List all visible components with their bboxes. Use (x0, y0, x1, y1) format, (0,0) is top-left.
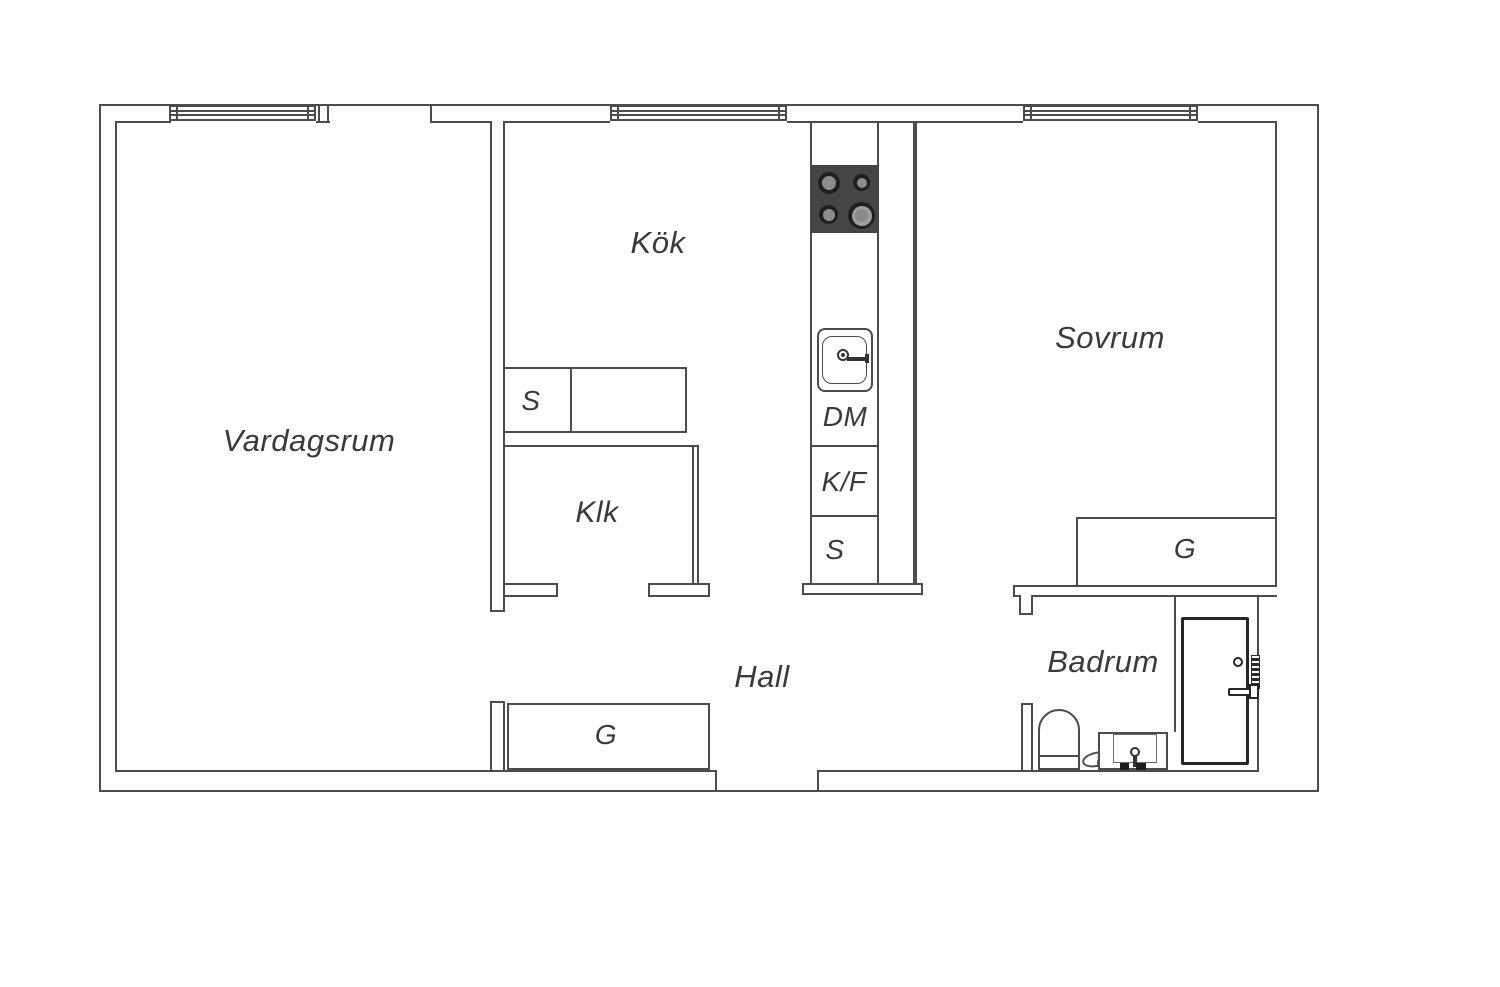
wall-segment (115, 121, 171, 123)
klk-door-jamb (708, 583, 710, 597)
wall-segment (1317, 104, 1319, 792)
fixture-label-hall-g: G (595, 719, 617, 751)
stove-burner (853, 174, 870, 191)
counter-strip-divider (810, 445, 879, 447)
door-knob (1233, 657, 1243, 667)
fixture-label-kf: K/F (821, 466, 866, 498)
stove-burner (818, 172, 840, 194)
door-jamb (1019, 595, 1021, 615)
wall-cap (921, 583, 923, 595)
counter-strip-divider (810, 515, 879, 517)
vanity-control (1136, 763, 1146, 770)
wall-segment (490, 701, 492, 772)
room-label-kok: Kök (631, 225, 686, 261)
window-end-cap (307, 107, 309, 119)
window-pane-line (1025, 110, 1196, 112)
window-end-cap (1030, 107, 1032, 119)
stove-burner (848, 202, 875, 229)
counter-divider (570, 367, 572, 433)
wall-segment (913, 122, 917, 583)
window-vardagsrum (169, 105, 316, 121)
counter-outline (505, 431, 687, 433)
wall-segment (915, 121, 1023, 123)
window-sovrum (1023, 105, 1198, 121)
klk-wall (505, 445, 699, 447)
toilet (1038, 709, 1080, 770)
wall-segment (316, 121, 330, 123)
wall-segment (490, 610, 505, 612)
wardrobe-outline (1076, 517, 1078, 587)
faucet-dot (841, 353, 845, 357)
klk-wall (697, 445, 699, 585)
faucet-arm (865, 354, 869, 363)
wall-segment (503, 121, 610, 123)
window-end-cap (778, 107, 780, 119)
fixture-label-tall-s: S (825, 534, 844, 566)
wall-segment (430, 121, 492, 123)
wall-segment (787, 121, 915, 123)
wall-segment (327, 106, 329, 121)
wall-segment (115, 770, 717, 772)
klk-wall (692, 445, 694, 585)
wall-segment (1033, 595, 1277, 597)
fixture-label-counter-s: S (521, 385, 540, 417)
vanity-faucet (1130, 747, 1140, 757)
wall-segment (1021, 703, 1023, 770)
klk-door-jamb (505, 583, 558, 585)
klk-door-jamb (648, 583, 710, 585)
vanity-control (1120, 763, 1129, 770)
wardrobe-outline (507, 703, 710, 705)
fixture-label-sovrum-g: G (1174, 533, 1196, 565)
wall-segment (99, 790, 1319, 792)
room-label-sovrum: Sovrum (1055, 320, 1165, 356)
window-end-cap (1189, 107, 1191, 119)
wall-segment (503, 701, 505, 772)
wall-cap (802, 583, 804, 595)
wall-segment (490, 121, 492, 612)
room-label-hall: Hall (734, 659, 789, 695)
door-jamb (1031, 595, 1033, 615)
window-pane-line (612, 110, 785, 112)
window-end-cap (176, 107, 178, 119)
wall-segment (1198, 121, 1277, 123)
wall-segment (1174, 597, 1176, 732)
klk-door-jamb (648, 595, 710, 597)
wall-segment (817, 770, 1259, 772)
window-kok (610, 105, 787, 121)
window-pane-line (171, 114, 314, 116)
wall-segment (1013, 585, 1277, 587)
toilet-seat-line (1040, 755, 1078, 757)
wall-cap (802, 593, 923, 595)
wall-segment (1031, 703, 1033, 770)
floor-plan: Vardagsrum Kök Sovrum Klk Hall Badrum S … (0, 0, 1500, 987)
wall-segment (817, 770, 819, 790)
wall-segment (99, 104, 101, 792)
door-jamb (1019, 613, 1033, 615)
counter-outline (505, 367, 687, 369)
door-handle-base (1249, 684, 1259, 699)
wardrobe-outline (507, 703, 509, 770)
window-pane-line (171, 110, 314, 112)
wardrobe-outline (507, 768, 710, 770)
klk-door-jamb (505, 595, 558, 597)
counter-outline (685, 367, 687, 433)
window-pane-line (1025, 114, 1196, 116)
window-end-cap (617, 107, 619, 119)
wardrobe-outline (708, 703, 710, 770)
room-label-badrum: Badrum (1047, 644, 1159, 680)
klk-door-jamb (556, 583, 558, 597)
wall-segment (318, 106, 320, 121)
room-label-klk: Klk (575, 496, 618, 530)
stove-burner (819, 205, 838, 224)
wall-segment (115, 121, 117, 772)
wardrobe-outline (1076, 517, 1277, 519)
wall-segment (715, 770, 717, 790)
room-label-vardagsrum: Vardagsrum (223, 423, 396, 459)
wall-cap (802, 583, 923, 585)
fixture-label-dm: DM (823, 401, 868, 433)
klk-door-jamb (648, 583, 650, 597)
stove-cooktop (811, 165, 879, 233)
window-pane-line (612, 114, 785, 116)
